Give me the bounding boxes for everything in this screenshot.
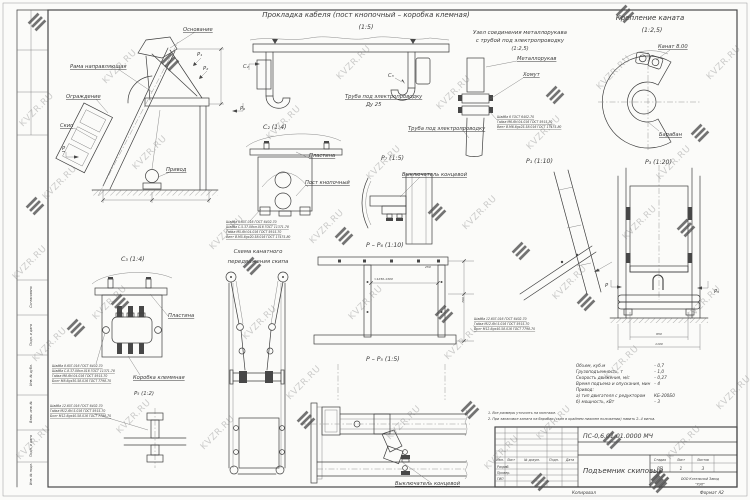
- label-du25: Ду 25: [365, 102, 382, 108]
- spec-name: а) тип двигателя с редуктором: [576, 393, 645, 398]
- spec-value: – 4: [654, 381, 660, 386]
- spec-name: Грузоподъемность, т: [576, 369, 623, 374]
- dim-pp6-1: 250: [425, 265, 431, 269]
- side-strip-label: Подп. и дата: [29, 324, 33, 346]
- label-truba: Труба под электропроводку: [345, 94, 423, 100]
- view-c3-box: [92, 272, 172, 375]
- fastener-line: Шайба 6 ГОСТ 6402-70: [497, 115, 534, 119]
- view-c2-post: [246, 134, 342, 221]
- col-izm: Изм.: [496, 458, 504, 462]
- sheet-frame: [3, 3, 747, 496]
- spec-name: Объем, куб.м: [576, 363, 605, 368]
- fastener-line: Винт В.М5-6gх20.58.016 ГОСТ 17475-80: [226, 235, 290, 239]
- heading-pp5: Р – Р₅ (1:5): [366, 356, 400, 363]
- view-rope-scheme: [226, 272, 288, 474]
- label-plastina2: Пластина: [168, 313, 194, 319]
- spec-value: – 1,0: [654, 369, 664, 374]
- label-vykl: Выключатель концевой: [402, 172, 468, 178]
- notes: 1. Все размеры уточнить на монтаже. 2. П…: [488, 411, 655, 421]
- specs: Объем, куб.м – 0,7 Грузоподъемность, т –…: [576, 363, 675, 404]
- label-baraban: Барабан: [659, 132, 683, 138]
- spec-name: Время подъема и опускания, мин: [576, 381, 651, 386]
- stage-label: Стадия: [654, 458, 666, 462]
- role-gip: ГИП: [497, 477, 504, 481]
- footer-format: Формат А2: [700, 490, 724, 495]
- dim-pp6-w: ≈1250-1300: [374, 277, 393, 281]
- company-name2: "РЭП": [695, 483, 705, 487]
- note-2: 2. При запасовке каната на барабан (скип…: [488, 417, 655, 421]
- view-arrow-p6: Р₆: [240, 106, 245, 112]
- fastener-line: Гайка М6-6Н.04.016 ГОСТ 5915-70: [497, 120, 552, 124]
- title-cable-scale: (1:5): [359, 24, 374, 31]
- view-arrow-p-left: Р: [605, 283, 609, 289]
- spec-name: б) мощность, кВт: [576, 399, 615, 404]
- heading-pp6: Р – Р₆ (1:10): [366, 242, 404, 249]
- label-skip: Скип: [60, 123, 74, 129]
- sheet-label: Лист: [676, 458, 685, 462]
- view-arrow-p2: Р₂: [203, 66, 208, 72]
- view-arrow-p: Р: [62, 146, 66, 152]
- view-rope-fastening: [598, 50, 700, 152]
- view-pp6-frame: [314, 257, 474, 400]
- view-arrow-p5: Р₅: [714, 289, 719, 295]
- stage-value: РП: [657, 466, 664, 471]
- fastener-line: Болт М12-6gх40.58.016 ГОСТ 7798-70: [50, 414, 111, 418]
- label-plastina: Пластина: [309, 153, 335, 159]
- label-khomut: Хомут: [522, 72, 541, 78]
- label-ograzhdenie: Ограждение: [66, 94, 101, 100]
- label-korobka: Коробка клеммная: [133, 375, 185, 381]
- spec-value: – 3: [654, 399, 660, 404]
- footer-kopiroval: Копировал: [572, 490, 596, 495]
- dim-p3-1: 950: [656, 332, 662, 336]
- fastener-line: Болт М8-6gх30.58.016 ГОСТ 7798-70: [52, 379, 111, 383]
- fastener-line: Винт В.М6-6gх25.58.016 ГОСТ 17475-80: [497, 125, 561, 129]
- label-metallorukav: Металлорукав: [517, 56, 556, 62]
- label-truba2: Труба под электропроводку: [408, 126, 486, 132]
- sheets-label: Листов: [696, 458, 709, 462]
- side-strip-label: Инв. № дубл.: [29, 364, 33, 386]
- sheet-value: 1: [680, 466, 683, 471]
- heading-c2: С₂ (1:4): [263, 124, 287, 131]
- heading-p1: Р₁ (1:10): [526, 158, 553, 165]
- role-razrab: Разраб.: [497, 465, 510, 469]
- heading-p7: Р₇ (1:5): [381, 155, 404, 162]
- section-arrow-c2: С₂: [243, 64, 249, 70]
- heading-p3: Р₃ (1:20): [645, 159, 672, 166]
- label-post: Пост кнопочный: [305, 180, 350, 186]
- drawing-sheet: Согласовано Подп. и дата Инв. № дубл. Вз…: [0, 0, 750, 500]
- label-privod: Привод: [166, 167, 187, 173]
- note-1: 1. Все размеры уточнить на монтаже.: [488, 411, 556, 415]
- company-name: ООО Котельный Завод: [681, 477, 720, 481]
- label-osnovanie: Основание: [183, 27, 213, 33]
- view-p7-switch: [362, 174, 432, 244]
- fastener-line: Гайка М12-6Н.5.016 ГОСТ 5915-70: [474, 322, 529, 326]
- sheets-value: 3: [702, 466, 705, 471]
- drawing-title: Подъемник скиповый: [583, 467, 664, 475]
- title-hose-scale: (1:2,5): [511, 46, 528, 52]
- title-cable-routing: Прокладка кабеля (пост кнопочный – короб…: [262, 11, 470, 19]
- fastener-line: Шайба 12.65Г.016 ГОСТ 6402-70: [50, 404, 103, 408]
- spec-value: – 0,7: [654, 363, 664, 368]
- view-general: [56, 32, 243, 203]
- col-ndoc: № докум.: [523, 458, 540, 462]
- col-podp: Подп.: [549, 458, 559, 462]
- fastener-line: Шайба С.5.37.08кп.016 ГОСТ 11371-78: [226, 225, 289, 229]
- side-strip-label: Инв. № подл.: [29, 463, 33, 485]
- col-data: Дата: [565, 458, 574, 462]
- drawing-canvas: Согласовано Подп. и дата Инв. № дубл. Вз…: [0, 0, 750, 500]
- spec-value: – 0,27: [654, 375, 667, 380]
- fastener-line: Шайба 8.65Г.016 ГОСТ 6402-70: [52, 364, 103, 368]
- fastener-line: Шайба С.8.37.08кп.016 ГОСТ 11371-78: [52, 369, 115, 373]
- heading-c3: С₃ (1:4): [121, 256, 145, 263]
- fastener-line: Шайба 12.65Г.016 ГОСТ 6402-70: [474, 317, 527, 321]
- side-strip-label: Подп. и дата: [29, 435, 33, 457]
- dim-pp6-2: 790: [461, 297, 465, 303]
- view-pp5-beam: [300, 403, 470, 483]
- fastener-line: Гайка М8-6Н.04.016 ГОСТ 5915-70: [52, 374, 107, 378]
- label-rama: Рама направляющая: [70, 64, 127, 70]
- dim-p3-2: 1100: [655, 342, 663, 346]
- view-arrow-p1: Р₁: [197, 52, 202, 58]
- fastener-line: Гайка М12-6Н.5.016 ГОСТ 5915-70: [50, 409, 105, 413]
- role-prover: Провер.: [497, 471, 510, 475]
- section-arrow-c3: С₃: [388, 73, 394, 79]
- spec-name: Привод:: [576, 387, 594, 392]
- side-strip: Согласовано Подп. и дата Инв. № дубл. Вз…: [29, 286, 33, 485]
- side-strip-label: Взам. инв. №: [29, 401, 33, 423]
- label-vykl2: Выключатель концевой: [395, 481, 461, 487]
- title-scheme-2: передвижения скипа: [228, 259, 289, 265]
- spec-name: Скорость движения, м/с: [576, 375, 630, 380]
- title-rope-scale: (1:2,5): [642, 27, 663, 34]
- view-p1-strut: [520, 170, 612, 300]
- side-strip-label: Согласовано: [29, 286, 33, 307]
- view-p3-frame: [610, 165, 708, 350]
- view-hose-unit: [458, 58, 523, 157]
- fastener-line: Болт М12-6gх40.58.016 ГОСТ 7798-70: [474, 327, 535, 331]
- col-list: Лист: [506, 458, 515, 462]
- label-kanat: Канат 8.00: [658, 44, 688, 50]
- fastener-line: Гайка М5-6Н.04.016 ГОСТ 5915-70: [226, 230, 281, 234]
- title-scheme-1: Схема канатного: [234, 249, 284, 255]
- title-hose-1: Узел соединения металлорукава: [473, 30, 567, 36]
- heading-p5: Р₅ (1:2): [134, 391, 154, 397]
- fastener-line: Шайба 5.65Г.016 ГОСТ 6402-70: [226, 220, 277, 224]
- spec-value: КБ-200Б0: [654, 393, 675, 398]
- title-hose-2: с трубой под электропроводку: [476, 38, 565, 44]
